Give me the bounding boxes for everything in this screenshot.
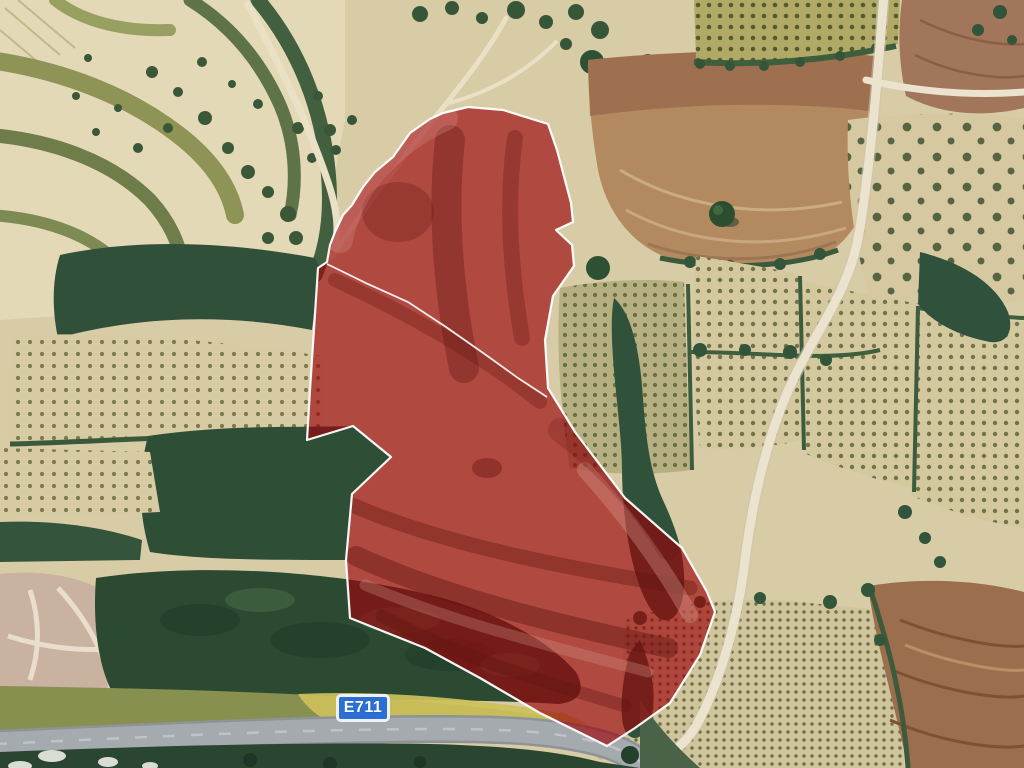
- satellite-map[interactable]: E711: [0, 0, 1024, 768]
- road-badge-e711: E711: [336, 694, 390, 722]
- satellite-canvas: [0, 0, 1024, 768]
